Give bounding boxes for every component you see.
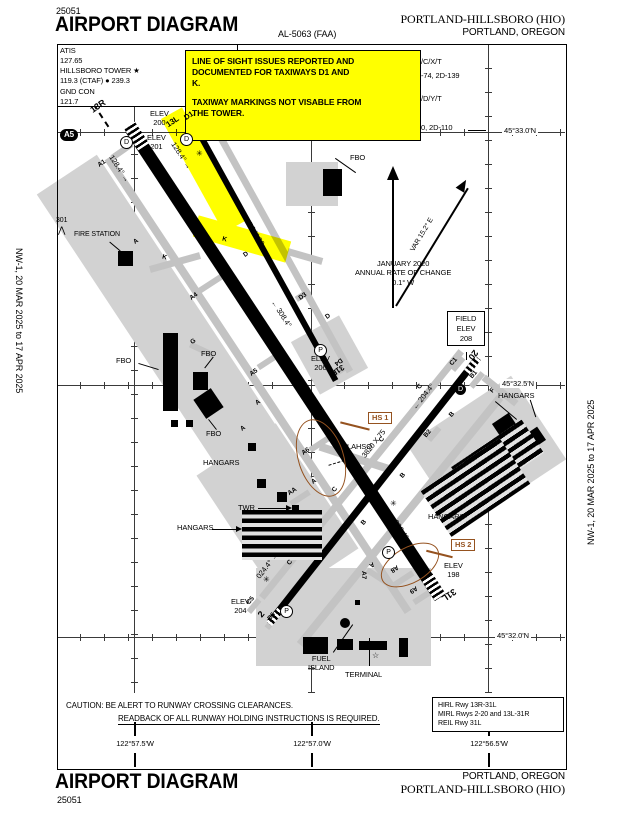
map-label-fbo: FBO	[116, 356, 131, 365]
map-label-g: G	[189, 337, 198, 347]
map-label-a5: A5	[60, 129, 78, 141]
map-label-d3: D3	[297, 291, 308, 302]
map-label-: ☆	[372, 651, 379, 661]
map-label-308-4: ← 308.4°	[269, 298, 294, 329]
map-label-c: C	[286, 559, 295, 568]
map-label-a: A	[310, 477, 318, 486]
map-label-: ✳	[196, 149, 203, 159]
map-label-p: P	[382, 546, 395, 559]
map-label-aa: AA	[287, 486, 299, 498]
map-label-: ✳	[263, 575, 270, 585]
map-label-a1: A1	[96, 158, 107, 169]
map-label-fire-station: FIRE STATION	[74, 231, 120, 240]
map-label-b: B	[360, 519, 369, 528]
map-label-266: 266	[372, 642, 383, 651]
map-label-31l: 31L	[439, 586, 458, 604]
map-label-b5: B5	[266, 611, 277, 622]
map-label-a9: A9	[407, 583, 418, 594]
map-label-hangars: HANGARS	[203, 458, 239, 467]
map-label-january-2020-annual-rate-of-change-0-1-w: JANUARY 2020 ANNUAL RATE OF CHANGE 0.1° …	[355, 259, 451, 287]
map-label-a: A	[254, 398, 262, 407]
map-label-2: 2	[256, 609, 268, 620]
map-label-a: A	[132, 237, 140, 246]
chart-code-bottom: 25051	[57, 795, 82, 805]
map-label-3600-x-60: 3600 X 60	[241, 214, 267, 247]
map-label-p: P	[314, 344, 327, 357]
map-label-hangars: HANGARS	[428, 512, 464, 521]
map-label-elev-201: ELEV 201	[147, 133, 166, 152]
map-label-d: D	[242, 250, 250, 259]
map-labels-layer: 13R13LD131R31L220128.4° →128.4° →← 308.4…	[0, 0, 621, 814]
map-label-a: A	[239, 424, 247, 433]
map-label-fbo: FBO	[201, 349, 216, 358]
map-label-terminal: TERMINAL	[345, 670, 382, 679]
map-label-b: B	[399, 472, 408, 481]
map-label-a6: A6	[300, 446, 311, 457]
map-label-d: D	[324, 312, 332, 321]
map-label-hangars: HANGARS	[177, 523, 213, 532]
map-label-hangars: HANGARS	[498, 391, 534, 400]
airport-name-footer: PORTLAND-HILLSBORO (HIO)	[400, 782, 565, 797]
map-label-d1: D1	[182, 109, 195, 122]
map-label-p: P	[280, 605, 293, 618]
map-label-k: K	[221, 236, 227, 245]
map-label-a: A	[367, 559, 375, 568]
map-label-308-4: ← 308.4°	[386, 510, 411, 541]
map-label-d: D	[455, 384, 466, 395]
map-label-a4: A4	[188, 291, 199, 302]
map-label-lahso: LAHSO	[347, 442, 372, 451]
page-title-footer: AIRPORT DIAGRAM	[55, 770, 238, 794]
map-label-b: B	[448, 411, 457, 420]
map-label-c1: C1	[448, 356, 459, 367]
map-label-b2: B2	[422, 428, 433, 439]
map-label-d: D	[120, 136, 133, 149]
map-label-c: C	[331, 486, 340, 495]
map-label-: ✳	[390, 499, 397, 509]
airport-diagram-page: 25051 AIRPORT DIAGRAM AL-5063 (FAA) PORT…	[0, 0, 621, 814]
map-label-elev-198: ELEV 198	[444, 561, 463, 580]
map-label-fbo: FBO	[350, 153, 365, 162]
map-label-: ⋀	[58, 225, 65, 236]
map-label-d: D	[180, 133, 193, 146]
map-label-b1: B1	[468, 369, 479, 380]
map-label-fuel-island: FUEL ISLAND	[308, 654, 335, 673]
city-footer: PORTLAND, OREGON	[462, 771, 565, 782]
map-label-fbo: FBO	[206, 429, 221, 438]
map-label-var-15-2-e: VAR 15.2° E	[409, 217, 436, 254]
map-label-128-4: 128.4° →	[107, 153, 132, 184]
map-label-f: F	[489, 387, 498, 395]
map-label-13r: 13R	[88, 97, 108, 115]
map-label-a5: A5	[248, 367, 259, 378]
map-label-a7: A7	[359, 571, 367, 579]
map-label-twr: TWR	[238, 503, 255, 512]
map-label-a8: A8	[388, 562, 399, 573]
map-label-20: 20	[465, 347, 480, 362]
map-label-k: K	[161, 254, 167, 263]
map-label-elev-200: ELEV 200	[150, 109, 169, 128]
